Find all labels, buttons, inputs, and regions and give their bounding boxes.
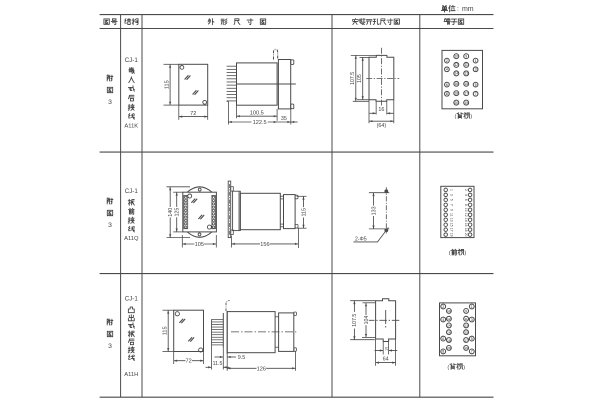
- svg-text:): ): [464, 251, 466, 257]
- svg-text:5: 5: [475, 83, 477, 87]
- svg-text:105: 105: [195, 242, 204, 248]
- svg-text:14: 14: [454, 72, 458, 76]
- svg-text:13: 13: [464, 72, 468, 76]
- svg-text:1: 1: [475, 59, 477, 63]
- svg-text:4: 4: [442, 318, 444, 322]
- svg-text:20: 20: [464, 233, 468, 237]
- svg-text:2: 2: [446, 59, 448, 63]
- svg-text:140: 140: [168, 208, 174, 217]
- svg-text:(64): (64): [377, 123, 387, 129]
- svg-text:19: 19: [464, 346, 468, 350]
- svg-text:16: 16: [454, 82, 458, 86]
- svg-text:1: 1: [450, 189, 454, 191]
- svg-text:18: 18: [454, 91, 458, 95]
- svg-text:7: 7: [450, 204, 454, 206]
- svg-text:4: 4: [446, 68, 448, 72]
- svg-text:5: 5: [471, 337, 473, 341]
- svg-text:16: 16: [464, 223, 468, 227]
- svg-text:107.5: 107.5: [352, 314, 358, 327]
- svg-text:5: 5: [450, 199, 454, 201]
- svg-text:3: 3: [108, 222, 112, 229]
- svg-text:64: 64: [383, 357, 389, 363]
- svg-text:72: 72: [185, 359, 191, 365]
- svg-text:A11H: A11H: [124, 372, 138, 378]
- svg-text:CJ-1: CJ-1: [125, 295, 139, 302]
- svg-text:100.5: 100.5: [250, 111, 264, 117]
- svg-text:3: 3: [471, 318, 473, 322]
- svg-text:12: 12: [454, 63, 458, 67]
- svg-text:115: 115: [163, 326, 169, 335]
- svg-text:(: (: [449, 251, 451, 257]
- svg-text:10: 10: [447, 309, 451, 313]
- svg-text:11.5: 11.5: [213, 361, 223, 367]
- svg-text:3: 3: [108, 343, 112, 350]
- svg-text:4: 4: [464, 194, 468, 196]
- svg-text:15: 15: [450, 223, 454, 227]
- svg-text:19: 19: [464, 101, 468, 105]
- svg-text:18: 18: [447, 338, 451, 342]
- svg-text:115: 115: [301, 208, 307, 217]
- svg-text:10: 10: [454, 54, 458, 58]
- svg-text:133: 133: [371, 206, 377, 215]
- svg-text:3: 3: [108, 99, 112, 106]
- svg-text:156: 156: [260, 242, 269, 248]
- svg-text:CJ-1: CJ-1: [125, 188, 139, 195]
- svg-text:(: (: [455, 114, 457, 120]
- svg-text:15: 15: [464, 82, 468, 86]
- svg-text:20: 20: [447, 346, 451, 350]
- svg-text:7: 7: [475, 92, 477, 96]
- svg-text:A11K: A11K: [124, 124, 138, 130]
- svg-text:6: 6: [446, 83, 448, 87]
- svg-text:16: 16: [447, 330, 451, 334]
- svg-text:16: 16: [384, 347, 388, 351]
- svg-text:CJ-1: CJ-1: [125, 57, 139, 64]
- svg-text:105: 105: [357, 74, 363, 83]
- svg-text:8: 8: [464, 204, 468, 206]
- svg-text:12: 12: [447, 317, 451, 321]
- svg-text:9: 9: [450, 209, 454, 211]
- svg-text:3: 3: [475, 68, 477, 72]
- svg-text:A11Q: A11Q: [124, 236, 139, 242]
- svg-text:16: 16: [378, 107, 384, 113]
- svg-text:(: (: [447, 365, 449, 371]
- svg-text:11: 11: [464, 317, 467, 321]
- svg-text:12: 12: [464, 213, 468, 217]
- svg-text:14: 14: [464, 218, 468, 222]
- svg-text:8: 8: [442, 350, 444, 354]
- svg-text:17: 17: [464, 338, 468, 342]
- svg-text:7: 7: [471, 350, 473, 354]
- svg-text:9: 9: [465, 309, 467, 313]
- svg-text:19: 19: [450, 233, 454, 237]
- svg-text:2: 2: [464, 189, 468, 191]
- svg-text:125: 125: [175, 208, 181, 217]
- svg-text:3: 3: [450, 194, 454, 196]
- svg-text:9: 9: [465, 54, 467, 58]
- svg-text:2-Φ5: 2-Φ5: [355, 236, 367, 242]
- svg-text:mm: mm: [462, 6, 474, 13]
- svg-text:11: 11: [450, 213, 454, 217]
- svg-text:): ): [463, 365, 465, 371]
- svg-text:13: 13: [450, 218, 454, 222]
- svg-text:115: 115: [164, 80, 170, 89]
- svg-text:122.5: 122.5: [253, 120, 267, 126]
- svg-text:1: 1: [471, 305, 473, 309]
- svg-text:35: 35: [281, 116, 287, 122]
- svg-text:9.5: 9.5: [238, 355, 246, 361]
- svg-text:10: 10: [464, 208, 468, 212]
- svg-text:13: 13: [464, 324, 468, 328]
- svg-text:18: 18: [464, 228, 468, 232]
- svg-text:72: 72: [190, 111, 196, 117]
- svg-text:6: 6: [442, 337, 444, 341]
- svg-text:15: 15: [464, 330, 468, 334]
- svg-text:): ): [470, 114, 472, 120]
- svg-text:14: 14: [447, 324, 451, 328]
- svg-text:11: 11: [464, 63, 468, 67]
- svg-text:107.5: 107.5: [350, 72, 356, 85]
- svg-text::: :: [457, 6, 459, 13]
- svg-text:20: 20: [454, 101, 458, 105]
- svg-text:8: 8: [446, 92, 448, 96]
- svg-text:104: 104: [364, 316, 370, 325]
- svg-text:17: 17: [450, 228, 454, 232]
- svg-text:17: 17: [464, 91, 468, 95]
- svg-text:6: 6: [464, 199, 468, 201]
- svg-text:126: 126: [257, 366, 266, 372]
- svg-text:2: 2: [442, 305, 444, 309]
